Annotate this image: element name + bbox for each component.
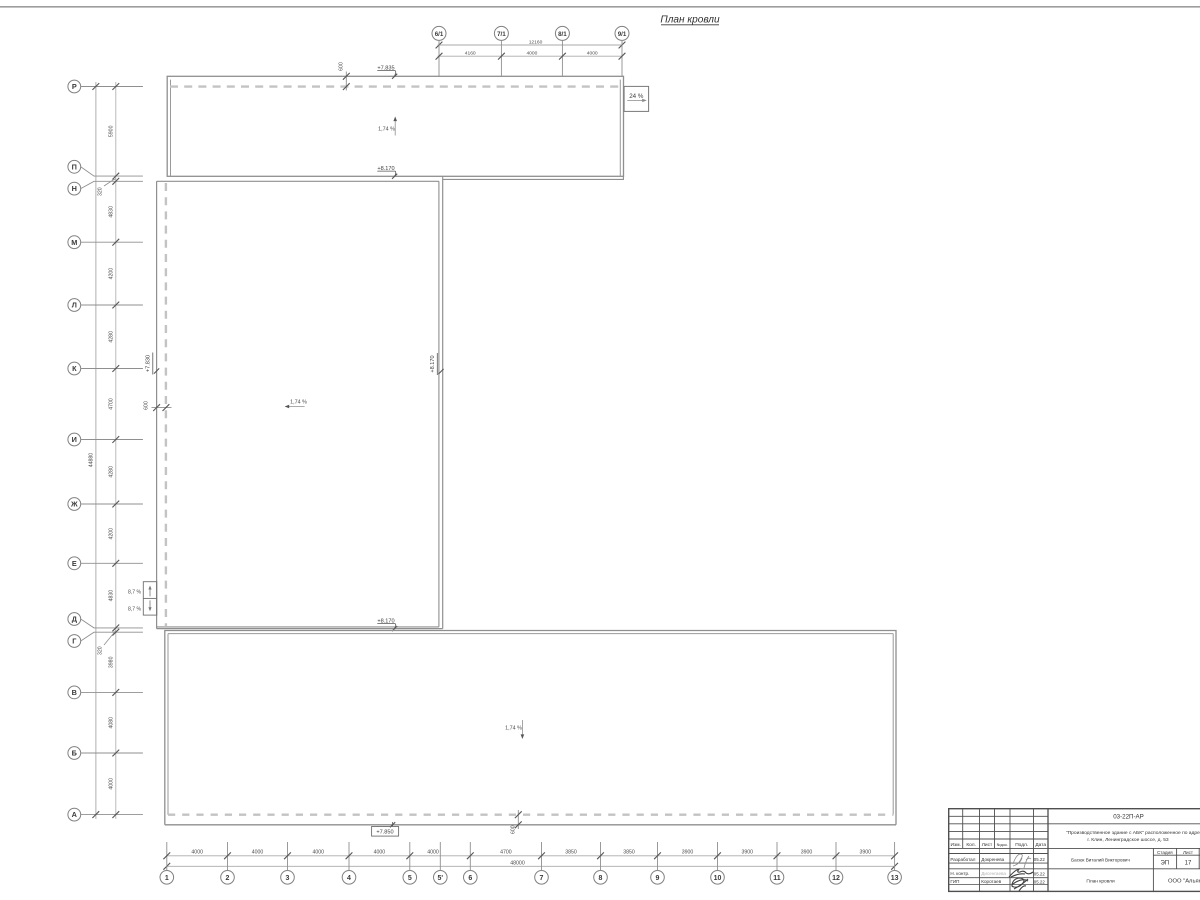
svg-text:12: 12 <box>832 875 840 882</box>
svg-text:+7.850: +7.850 <box>376 830 393 836</box>
svg-text:4280: 4280 <box>109 466 115 478</box>
svg-text:И: И <box>72 435 77 444</box>
svg-text:Лист: Лист <box>1183 850 1194 855</box>
svg-text:600: 600 <box>511 825 517 834</box>
svg-text:8: 8 <box>599 875 603 882</box>
svg-text:7: 7 <box>540 875 544 882</box>
svg-text:3900: 3900 <box>682 850 694 856</box>
svg-text:"Производственное здание с АБК: "Производственное здание с АБК" располож… <box>1066 830 1200 836</box>
svg-text:05.22: 05.22 <box>1034 879 1046 884</box>
svg-text:+7.830: +7.830 <box>146 355 152 372</box>
svg-text:К: К <box>72 364 77 373</box>
svg-text:4000: 4000 <box>313 850 325 856</box>
svg-text:8,7 %: 8,7 % <box>128 589 141 595</box>
svg-text:Г: Г <box>72 637 76 646</box>
svg-text:4: 4 <box>347 875 351 882</box>
svg-text:В: В <box>72 688 77 697</box>
svg-text:4000: 4000 <box>109 778 115 790</box>
svg-text:4200: 4200 <box>109 268 115 280</box>
svg-text:6: 6 <box>468 875 472 882</box>
svg-text:4700: 4700 <box>109 398 115 410</box>
svg-text:2: 2 <box>226 875 230 882</box>
svg-text:1,74 %: 1,74 % <box>505 726 522 732</box>
svg-text:8,7 %: 8,7 % <box>128 606 141 612</box>
svg-text:5900: 5900 <box>109 125 115 137</box>
svg-text:4000: 4000 <box>526 51 537 57</box>
svg-text:4000: 4000 <box>427 850 439 856</box>
svg-text:Л: Л <box>72 301 77 310</box>
svg-text:48000: 48000 <box>510 861 525 867</box>
svg-text:4700: 4700 <box>500 850 512 856</box>
svg-text:Подл.: Подл. <box>1015 842 1028 848</box>
svg-text:05.22: 05.22 <box>1034 857 1046 862</box>
svg-text:17: 17 <box>1185 860 1192 866</box>
svg-text:Стадия: Стадия <box>1157 850 1173 855</box>
svg-text:Басюк Виталий Викторович: Басюк Виталий Викторович <box>1071 856 1130 862</box>
svg-text:600: 600 <box>339 62 345 71</box>
svg-text:Н. контр.: Н. контр. <box>950 871 969 876</box>
svg-text:Дата: Дата <box>1035 842 1046 848</box>
svg-text:3900: 3900 <box>860 850 872 856</box>
svg-text:6/1: 6/1 <box>435 31 444 38</box>
svg-text:4830: 4830 <box>109 206 115 218</box>
svg-text:11: 11 <box>773 875 781 882</box>
svg-text:12160: 12160 <box>529 39 543 45</box>
svg-text:320: 320 <box>98 187 104 196</box>
svg-text:План кровли: План кровли <box>1086 878 1115 884</box>
svg-text:1: 1 <box>165 875 169 882</box>
svg-text:ООО "Альянс": ООО "Альянс" <box>1168 879 1200 885</box>
svg-text:4000: 4000 <box>374 850 386 856</box>
svg-text:План кровли: План кровли <box>660 15 720 26</box>
svg-text:Изм.: Изм. <box>951 842 961 848</box>
svg-text:3850: 3850 <box>623 850 635 856</box>
svg-text:№док.: №док. <box>996 842 1007 847</box>
svg-text:ЭП: ЭП <box>1160 860 1169 866</box>
svg-text:Дисенгаева: Дисенгаева <box>981 871 1006 876</box>
svg-text:г. Клин, Ленинградское шоссе,: г. Клин, Ленинградское шоссе, д. 53 <box>1087 837 1169 843</box>
svg-text:4200: 4200 <box>109 528 115 540</box>
svg-text:600: 600 <box>144 401 150 410</box>
svg-text:4280: 4280 <box>109 331 115 343</box>
svg-text:4000: 4000 <box>252 850 264 856</box>
svg-text:10: 10 <box>714 875 722 882</box>
svg-text:8/1: 8/1 <box>558 31 567 38</box>
svg-text:4000: 4000 <box>587 51 598 57</box>
svg-text:Докренева: Докренева <box>981 857 1004 862</box>
svg-text:Б: Б <box>72 749 77 758</box>
svg-text:44880: 44880 <box>88 453 94 468</box>
svg-text:4000: 4000 <box>191 850 203 856</box>
svg-text:9: 9 <box>656 875 660 882</box>
svg-text:24 %: 24 % <box>629 93 644 100</box>
svg-text:4160: 4160 <box>465 51 476 57</box>
svg-text:3900: 3900 <box>801 850 813 856</box>
svg-text:1,74 %: 1,74 % <box>378 127 395 133</box>
svg-text:Коротаев: Коротаев <box>981 879 1001 884</box>
svg-text:П: П <box>72 162 77 171</box>
svg-text:3850: 3850 <box>565 850 577 856</box>
svg-text:4830: 4830 <box>109 590 115 602</box>
svg-text:4080: 4080 <box>109 717 115 729</box>
svg-text:3900: 3900 <box>742 850 754 856</box>
svg-text:5: 5 <box>408 875 412 882</box>
svg-text:Кол.: Кол. <box>966 842 976 848</box>
svg-text:1,74 %: 1,74 % <box>290 400 307 406</box>
svg-text:03-22П-АР: 03-22П-АР <box>1113 814 1144 821</box>
svg-text:320: 320 <box>98 646 104 655</box>
svg-text:3: 3 <box>286 875 290 882</box>
svg-text:5': 5' <box>438 875 444 882</box>
svg-text:3980: 3980 <box>109 656 115 668</box>
svg-text:Н: Н <box>72 184 77 193</box>
svg-text:+8.170: +8.170 <box>430 355 436 372</box>
svg-text:А: А <box>72 810 78 819</box>
svg-text:7/1: 7/1 <box>497 31 506 38</box>
svg-text:9/1: 9/1 <box>618 31 627 38</box>
svg-text:Лист: Лист <box>982 842 993 848</box>
svg-text:Е: Е <box>72 559 77 568</box>
svg-text:М: М <box>71 238 77 247</box>
svg-text:13: 13 <box>891 875 899 882</box>
svg-text:05.22: 05.22 <box>1034 871 1046 876</box>
svg-text:Разработал: Разработал <box>950 857 975 862</box>
svg-text:Д: Д <box>72 615 78 624</box>
svg-text:Ж: Ж <box>70 500 78 509</box>
svg-text:ГИП: ГИП <box>950 879 959 884</box>
svg-text:Р: Р <box>72 82 77 91</box>
